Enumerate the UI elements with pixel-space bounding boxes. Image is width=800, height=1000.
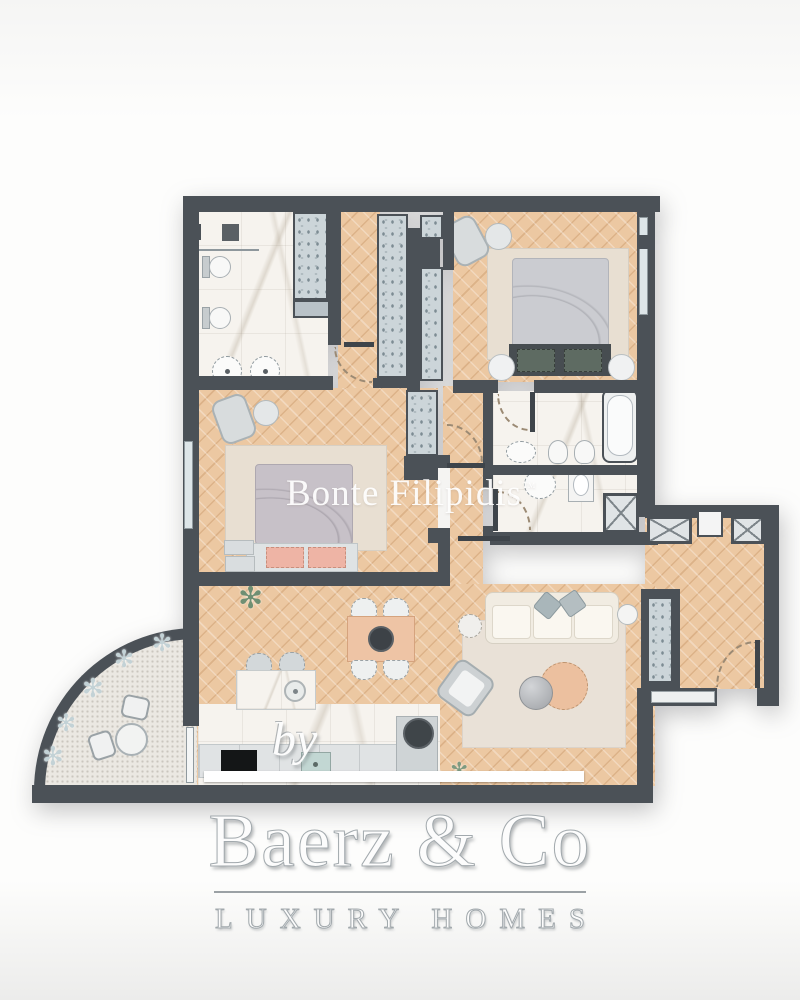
bedroom2-bench [224, 540, 254, 555]
bedroom1-ottoman [485, 223, 512, 250]
wardrobe-block-wall [415, 239, 440, 267]
bedroom1-bed-duvet [512, 258, 609, 348]
bedroom2-pillow [308, 547, 346, 568]
tv-cabinet [647, 597, 673, 683]
bathroom2-sink [506, 441, 536, 463]
brand-name: Baerz & Co [100, 798, 700, 885]
shower-head-icon [222, 224, 239, 241]
living-right-wall [637, 688, 653, 803]
floorplan-page: ✻ ✻ ✻ ✻ ✻ [0, 0, 800, 1000]
balcony-slider [186, 727, 194, 783]
bedroom1-window [639, 217, 648, 315]
shower-cabin [603, 493, 639, 533]
bedroom2-east-wall-b [438, 528, 450, 574]
bathroom1-east-wall [328, 212, 341, 345]
kitchen-plant-icon: ✻ [238, 584, 263, 614]
balcony-plant-icon: ✻ [56, 712, 76, 736]
entry-closet [731, 516, 764, 544]
brand-byline: by [272, 712, 317, 767]
side-table [458, 614, 482, 638]
sofa-cushion [492, 605, 531, 639]
watermark-text: Bonte Filipidis [286, 473, 522, 514]
bedroom1-west-wall [443, 212, 454, 270]
entry-door-leaf [755, 640, 760, 688]
wardrobe-strip [420, 267, 443, 381]
nightstand [488, 354, 515, 381]
bathroom1-door-leaf [344, 342, 374, 347]
bathtub-inner [607, 395, 633, 456]
hall-door-leaf [447, 463, 485, 468]
bathroom-wardrobe [293, 212, 328, 300]
bedroom2-side-table [253, 400, 279, 426]
wardrobe-strip [406, 390, 438, 456]
wardrobe-strip [377, 214, 408, 378]
living-window [204, 771, 584, 782]
balcony-plant-icon: ✻ [152, 632, 172, 656]
right-wall [764, 505, 779, 701]
nightstand [608, 354, 635, 381]
bedroom2-south-wall [183, 572, 450, 586]
dining-chair [351, 598, 377, 618]
bathrooms-right-wall [637, 382, 655, 517]
sink-drain-icon [263, 369, 268, 374]
entry-shaft [697, 510, 723, 537]
balcony-plant-icon: ✻ [42, 744, 64, 770]
bathroom2-bidet [574, 440, 595, 464]
shower-glass-line [199, 249, 259, 251]
bathroom2-door-leaf [530, 392, 535, 432]
bar-stool [279, 652, 305, 671]
brand-tagline: LUXURY HOMES [100, 903, 700, 936]
toilet-bowl [209, 256, 231, 278]
living-north-wall [490, 532, 658, 545]
brand-block: Baerz & Co LUXURY HOMES [100, 798, 700, 936]
living-hall-door-leaf [458, 536, 510, 541]
island-faucet-icon [293, 689, 298, 694]
bidet-bowl [209, 307, 231, 329]
bedroom2-window [184, 441, 193, 529]
balcony-plant-icon: ✻ [114, 648, 134, 672]
balcony-plant-icon: ✻ [82, 676, 104, 702]
top-wall [183, 196, 660, 212]
bedroom1-south-wall-b [534, 380, 638, 393]
watermark: Bonte Filipidis™ [286, 472, 537, 515]
cabinet-basin [403, 718, 434, 749]
dining-chair [383, 598, 409, 618]
bedroom1-pillow [564, 349, 602, 372]
bedroom2-pillow [266, 547, 304, 568]
coffee-table-small [519, 676, 553, 710]
counter-basin [573, 474, 589, 496]
bedroom2-bench [225, 556, 255, 572]
watermark-tm: ™ [522, 481, 537, 496]
balcony-table [115, 723, 148, 756]
bedroom1-window-mullion [637, 235, 653, 249]
sink-drain-icon [225, 369, 230, 374]
bathroom1-south-wall [183, 376, 333, 390]
brand-divider [214, 891, 586, 893]
entry-bottom-wall-2 [757, 688, 779, 706]
wardrobe-strip [420, 215, 443, 239]
side-table [617, 604, 638, 625]
entry-closet [647, 516, 692, 544]
dining-centerpiece [368, 626, 394, 652]
entry-window-sill [651, 691, 715, 703]
bathroom2-toilet [548, 440, 568, 464]
bedroom1-pillow [517, 349, 555, 372]
